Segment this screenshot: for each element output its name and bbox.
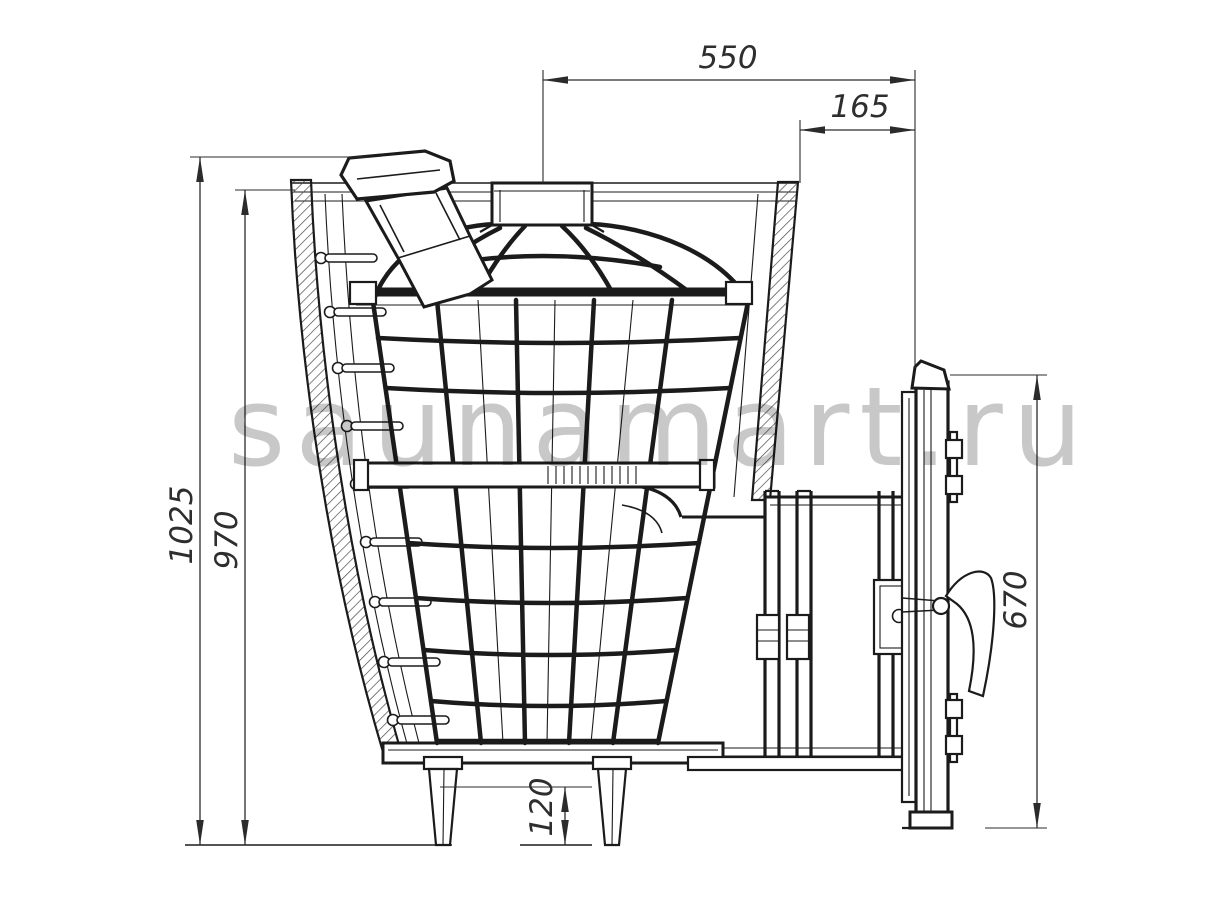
dim-label-550: 550 [698,40,757,76]
watermark: saunamart.ru [228,372,1092,482]
dim-label-165: 165 [830,89,889,125]
dim-body-height: 970 [209,190,295,845]
cage-upper-band [350,282,752,305]
dim-label-1025: 1025 [164,486,200,565]
technical-drawing: 550 165 1025 970 670 120 saunamart.ru [0,0,1217,914]
dim-label-670: 670 [998,570,1034,629]
door-bottom-cap [910,812,952,828]
dim-label-970: 970 [209,510,245,569]
top-collar [480,183,604,232]
dim-leg-height: 120 [440,777,592,845]
dim-label-120: 120 [524,777,560,836]
dim-door-offset: 165 [800,89,915,183]
firebox-tunnel [622,486,924,762]
